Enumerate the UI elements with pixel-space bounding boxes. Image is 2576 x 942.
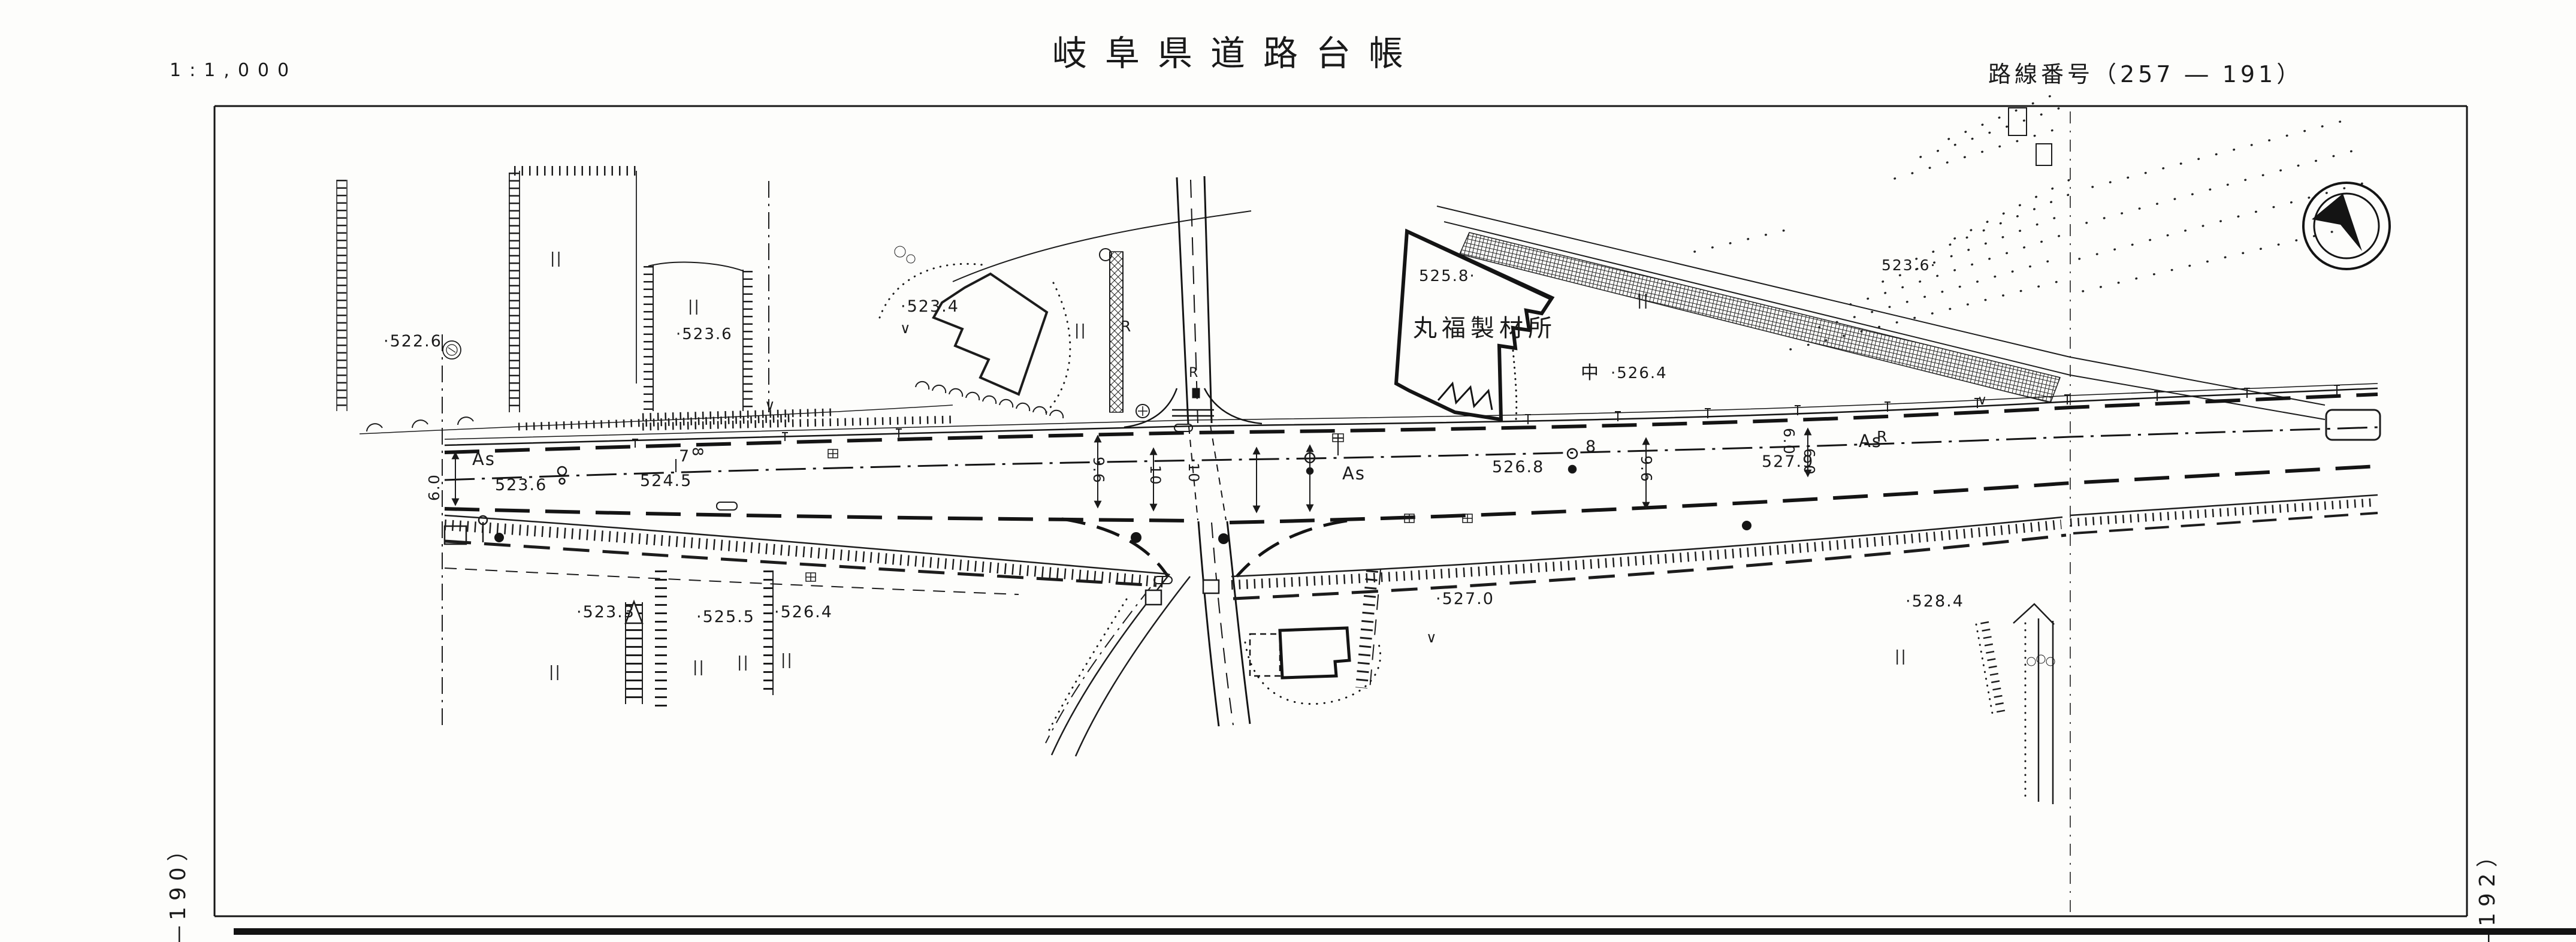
field-mark-4: || bbox=[1637, 292, 1650, 307]
spot-height-526-4-bottom: ·526.4 bbox=[774, 604, 833, 620]
station-8: 8 bbox=[1586, 439, 1597, 455]
spot-height-528-4: ·528.4 bbox=[1905, 593, 1964, 609]
width-6-0-r1: 6.0 bbox=[1781, 428, 1796, 455]
field-mark-6: || bbox=[693, 659, 705, 674]
spot-height-525-5: ·525.5 bbox=[696, 609, 755, 625]
culvert-icons bbox=[717, 424, 1192, 584]
embankment-band bbox=[1437, 108, 2380, 440]
width-arrows bbox=[455, 429, 1808, 512]
check-mark-4: ∨ bbox=[1977, 394, 1988, 407]
field-mark-9: || bbox=[1895, 648, 1907, 663]
field-mark-3: || bbox=[1074, 322, 1087, 337]
page-title: 岐阜県道路台帳 bbox=[1052, 36, 1421, 71]
kanji-naka-symbol: 中 bbox=[1581, 364, 1600, 382]
field-mark-2: || bbox=[550, 250, 563, 265]
parcels bbox=[337, 171, 954, 726]
spot-height-526-4-mid: ·526.4 bbox=[1611, 366, 1668, 381]
building-name-marufuku: 丸福製材所 bbox=[1413, 316, 1557, 340]
spot-height-523-3: ·523.3 bbox=[576, 604, 635, 620]
station-8-rotated: 8 bbox=[690, 447, 705, 457]
road-centerline bbox=[445, 427, 2378, 480]
width-6-0-r2: 6.0 bbox=[1802, 448, 1817, 476]
field-mark-8: || bbox=[781, 652, 793, 667]
r-mark-2: R bbox=[1189, 367, 1199, 380]
spot-height-523-4: ·523.4 bbox=[901, 298, 959, 315]
box-cross-icons bbox=[806, 449, 1472, 581]
small-building-group bbox=[1245, 628, 1381, 704]
building-small bbox=[1280, 628, 1349, 678]
field-mark-7: || bbox=[737, 654, 750, 669]
building-central bbox=[934, 274, 1047, 394]
margin-sheet-190: ―190） bbox=[168, 834, 189, 942]
map-drawing bbox=[0, 0, 2576, 942]
r-mark-3: R bbox=[1877, 429, 1888, 444]
station-marker-icons bbox=[558, 449, 1577, 484]
spot-height-523-6-topright: 523.6· bbox=[1882, 258, 1937, 273]
spot-height-525-8: 525.8· bbox=[1419, 268, 1476, 284]
check-mark-3: ∨ bbox=[1426, 630, 1438, 645]
road-height-524-5: 524.5 bbox=[640, 473, 692, 489]
r-mark-1: R bbox=[1121, 319, 1132, 334]
structure-right-edge bbox=[2326, 410, 2380, 440]
scan-edge-strip bbox=[234, 928, 2576, 935]
check-mark-2: ∨ bbox=[765, 398, 777, 412]
lower-band bbox=[445, 495, 2378, 804]
spot-height-522-6: ·522.6 bbox=[383, 333, 442, 349]
pavement-as-1: As bbox=[472, 451, 496, 468]
stipple-dots bbox=[1695, 90, 2372, 349]
width-9-6-a: 9.6 bbox=[1091, 457, 1106, 484]
field-mark-5: || bbox=[549, 664, 561, 679]
width-10-a: 10 bbox=[1148, 465, 1162, 486]
road-ledger-sheet: 1:1,000 岐阜県道路台帳 路線番号（257 ― 191） ―190） ―1… bbox=[0, 0, 2576, 942]
check-mark-1: ∨ bbox=[900, 321, 912, 336]
field-mark-1: || bbox=[688, 298, 700, 313]
spot-height-523-6-field: ·523.6 bbox=[676, 327, 733, 342]
cross-road bbox=[1172, 176, 1250, 726]
pavement-as-2: As bbox=[1342, 465, 1366, 482]
spot-height-527-0: ·527.0 bbox=[1436, 591, 1494, 607]
road-height-523-6: 523.6 bbox=[495, 477, 547, 493]
width-9-6-b: 9.6 bbox=[1639, 455, 1654, 483]
seal-stamp-icon bbox=[443, 341, 461, 359]
margin-sheet-192: ―192） bbox=[2477, 840, 2499, 942]
main-road bbox=[445, 384, 2378, 576]
width-10-b: 10 bbox=[1186, 463, 1201, 484]
compass-north-arrow-icon bbox=[2303, 183, 2390, 269]
road-height-526-8: 526.8 bbox=[1492, 459, 1544, 475]
scale-label: 1:1,000 bbox=[170, 62, 297, 80]
route-number-label: 路線番号（257 ― 191） bbox=[1988, 63, 2303, 86]
width-6-0-left: 6.0 bbox=[427, 473, 442, 501]
